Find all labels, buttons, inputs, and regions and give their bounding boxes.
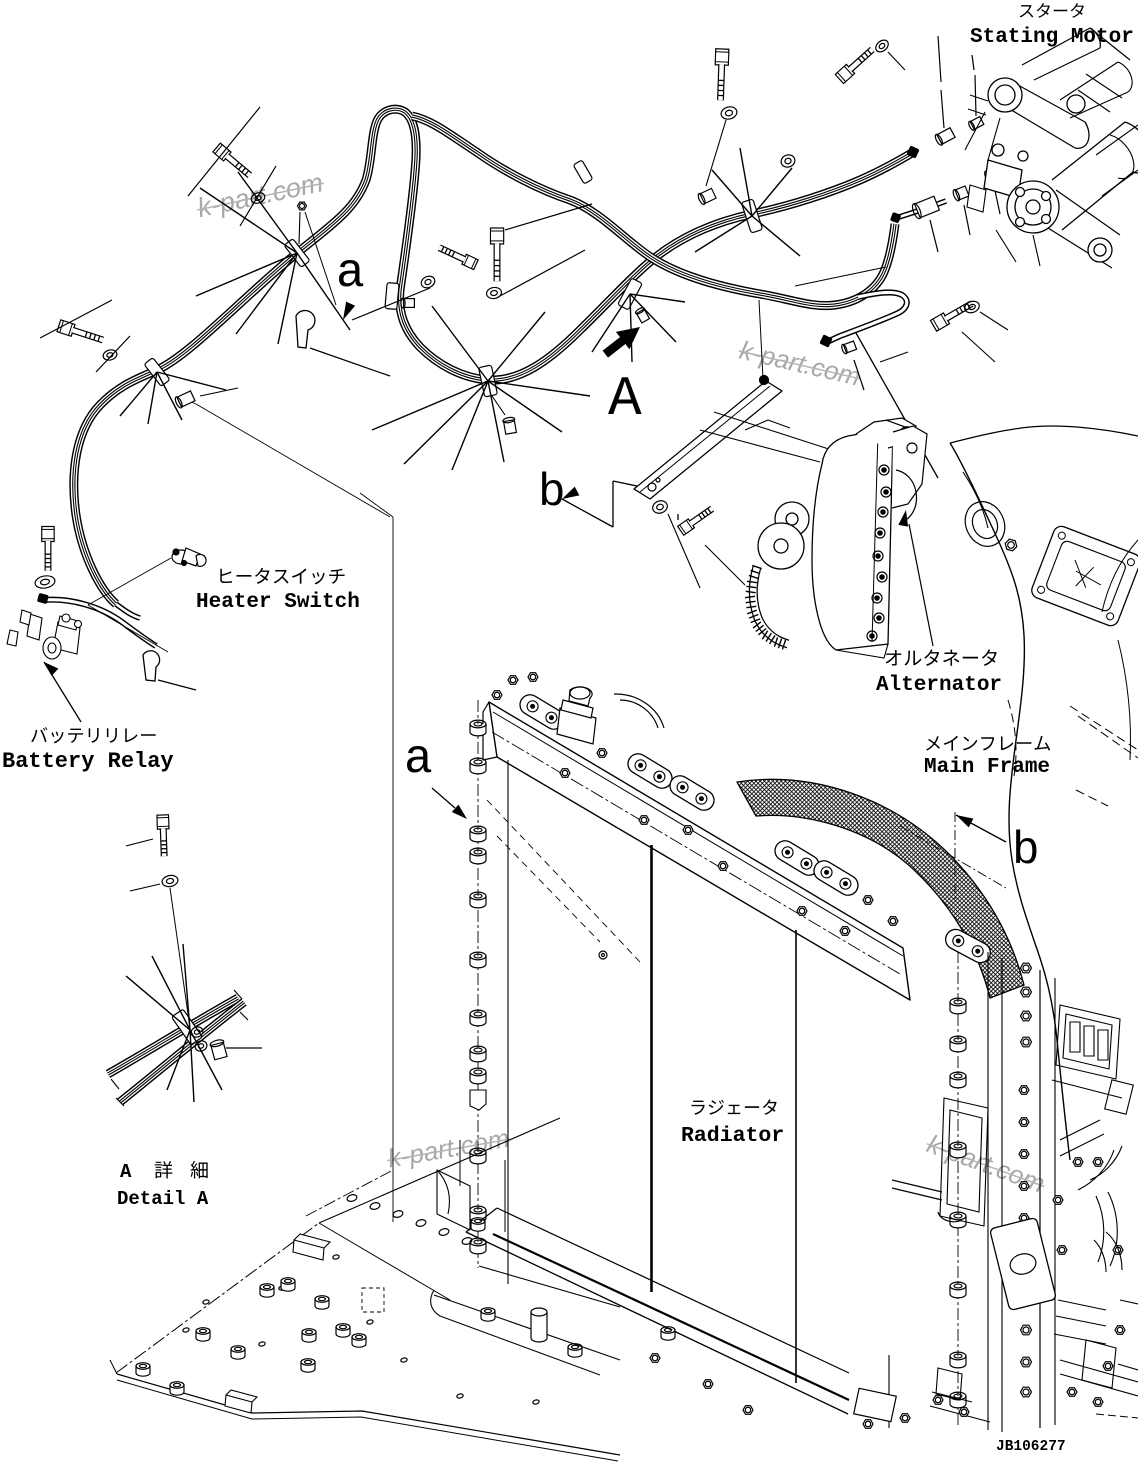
svg-text:Alternator: Alternator xyxy=(876,674,1002,697)
svg-text:Stating Motor: Stating Motor xyxy=(970,26,1134,49)
svg-text:Battery Relay: Battery Relay xyxy=(2,749,174,774)
svg-text:Main Frame: Main Frame xyxy=(924,756,1050,779)
svg-text:a: a xyxy=(404,733,433,787)
svg-text:Radiator: Radiator xyxy=(681,1124,784,1148)
svg-text:Heater Switch: Heater Switch xyxy=(196,591,360,614)
svg-text:b: b xyxy=(538,467,566,519)
svg-text:A: A xyxy=(120,1161,132,1183)
svg-text:A: A xyxy=(608,367,642,431)
svg-text:Detail A: Detail A xyxy=(117,1188,209,1210)
svg-text:b: b xyxy=(1012,825,1040,877)
svg-text:a: a xyxy=(336,247,365,301)
svg-text:JB106277: JB106277 xyxy=(996,1439,1066,1455)
